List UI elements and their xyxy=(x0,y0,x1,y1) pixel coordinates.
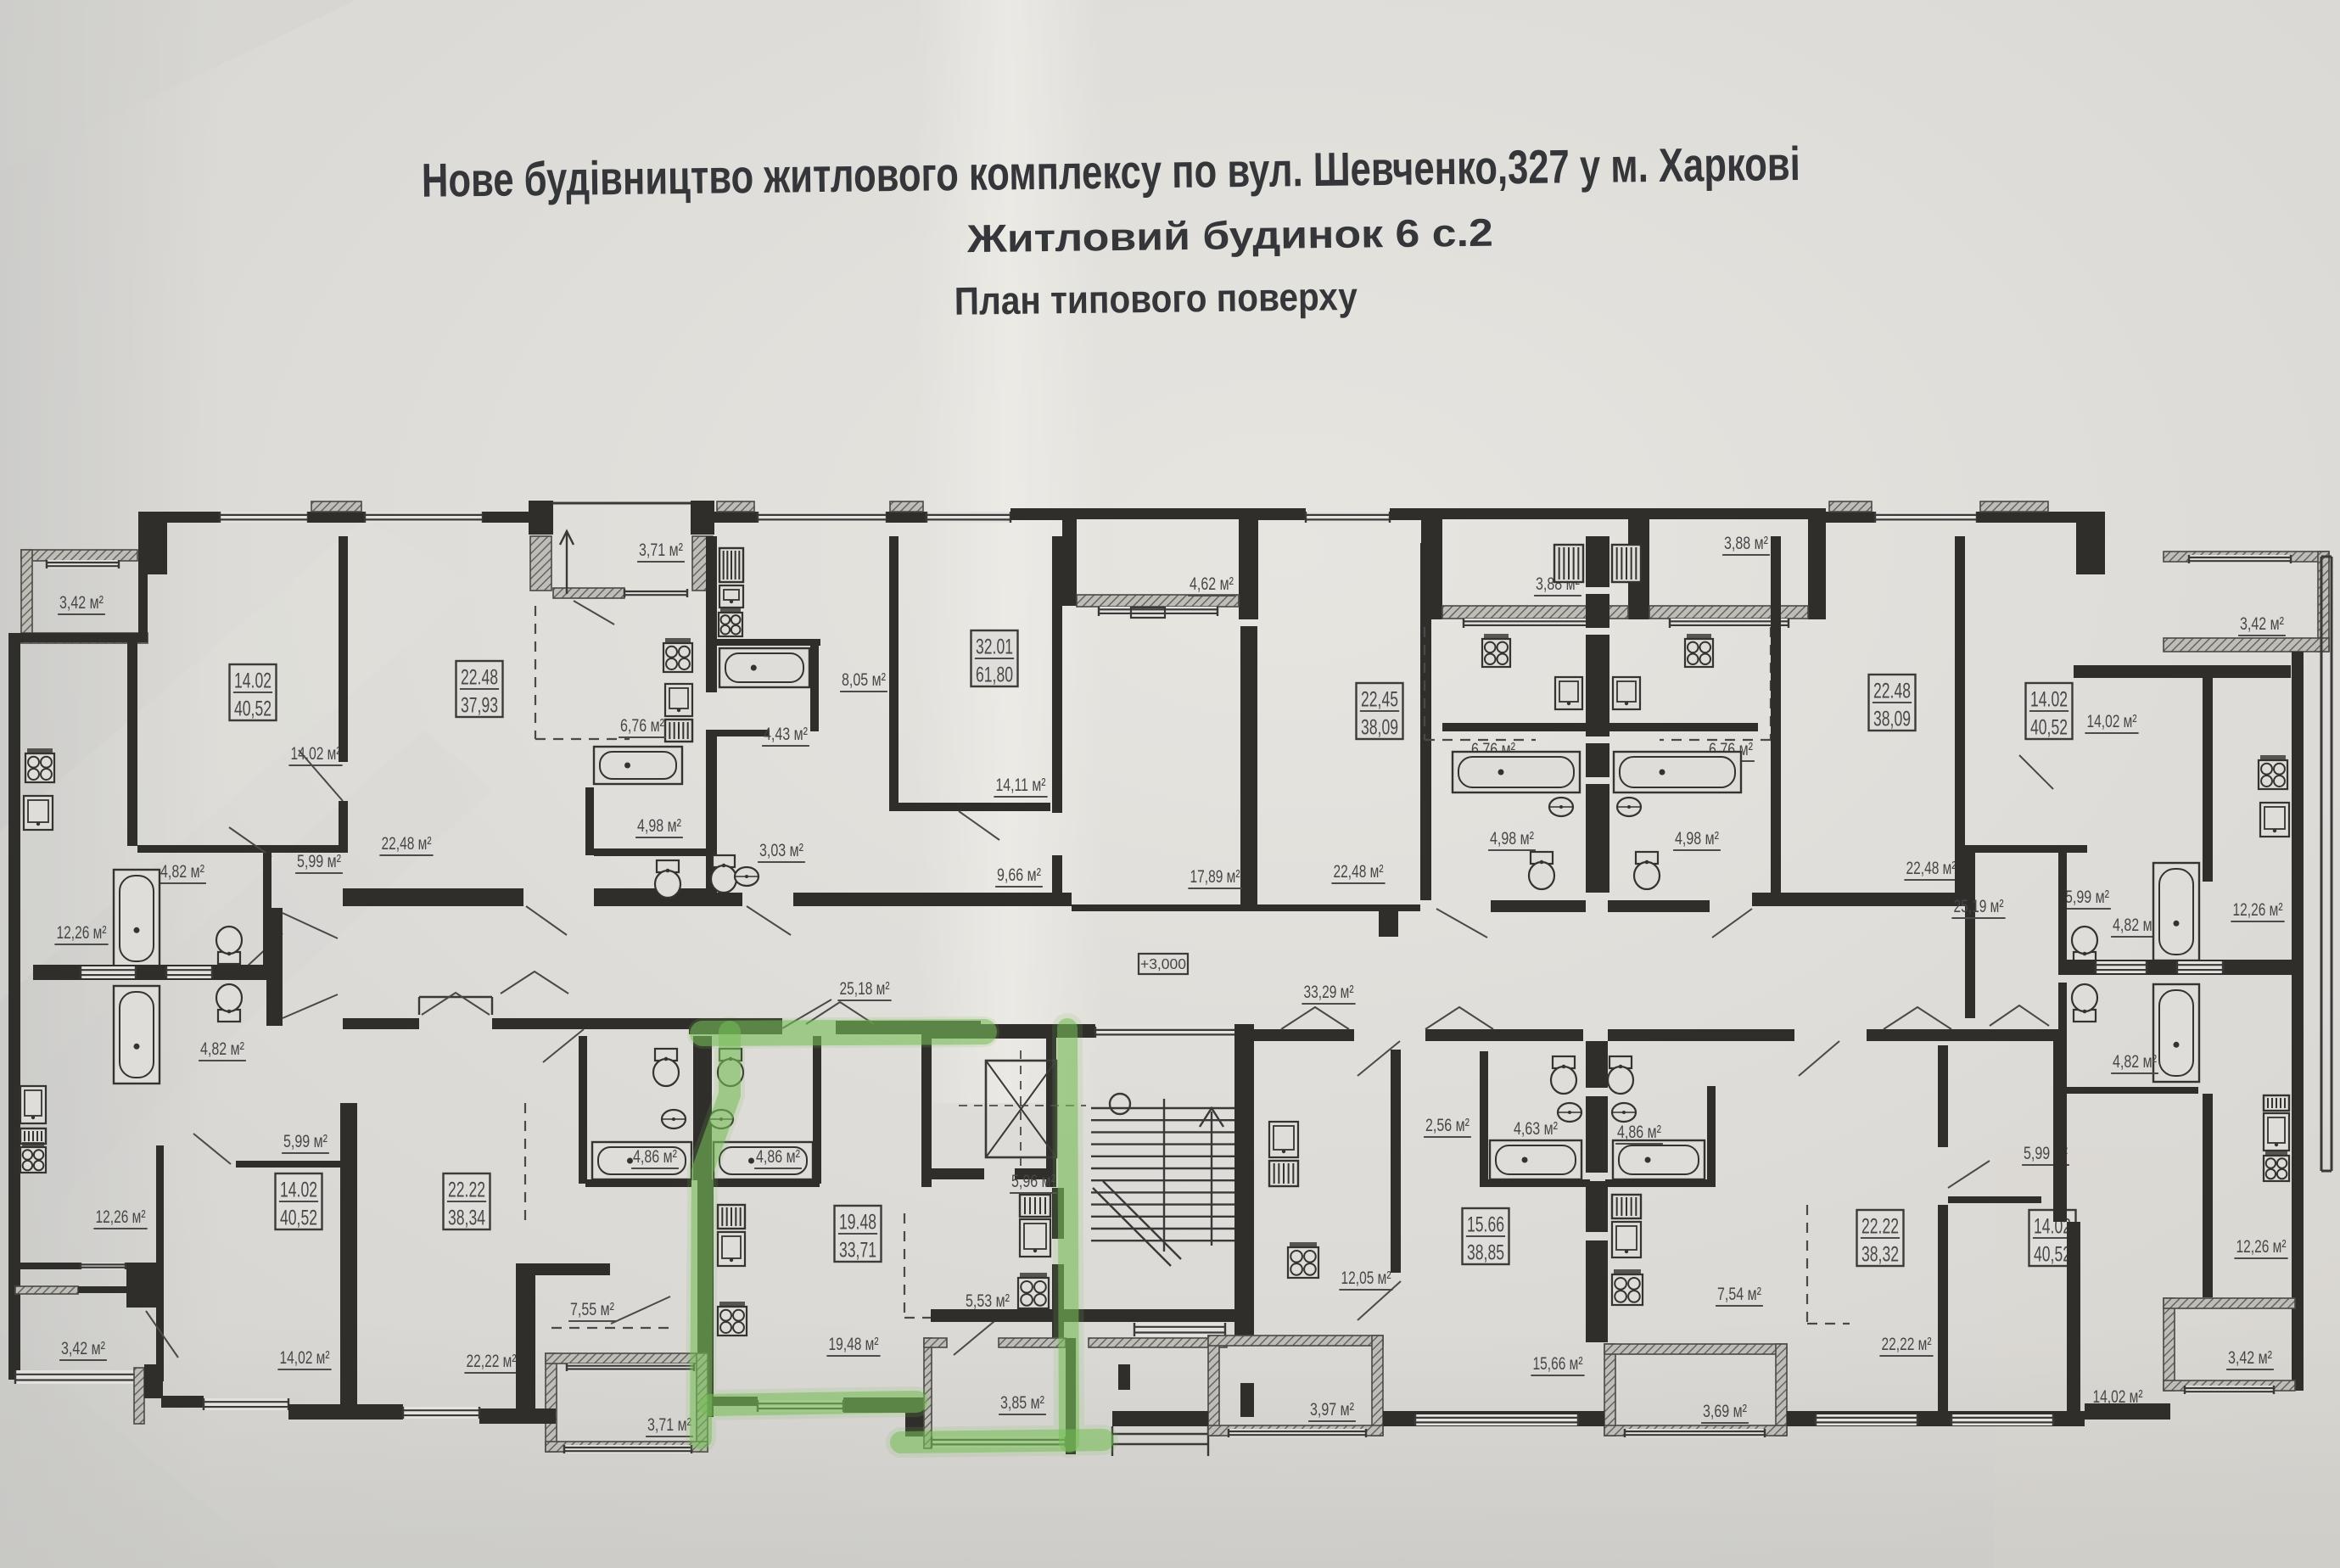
svg-text:14.02 м²: 14.02 м² xyxy=(291,744,341,764)
svg-text:План типового поверху: План типового поверху xyxy=(954,274,1358,323)
svg-text:14.02: 14.02 xyxy=(234,669,272,693)
svg-text:38,34: 38,34 xyxy=(448,1207,485,1230)
svg-text:38,85: 38,85 xyxy=(1467,1241,1504,1265)
svg-text:3,42 м²: 3,42 м² xyxy=(61,1339,105,1358)
svg-text:14,02 м²: 14,02 м² xyxy=(280,1348,330,1368)
svg-text:4,82 м²: 4,82 м² xyxy=(2113,1052,2157,1072)
svg-text:4,86 м²: 4,86 м² xyxy=(756,1147,800,1167)
svg-text:22.48: 22.48 xyxy=(461,666,498,690)
svg-text:17,89 м²: 17,89 м² xyxy=(1190,867,1240,887)
svg-text:40,52: 40,52 xyxy=(280,1207,317,1230)
svg-text:40,52: 40,52 xyxy=(2034,1243,2071,1267)
svg-text:19,48 м²: 19,48 м² xyxy=(829,1335,879,1354)
svg-text:5,99 м²: 5,99 м² xyxy=(2065,888,2109,907)
svg-text:38,09: 38,09 xyxy=(1361,716,1398,740)
svg-text:6,76 м²: 6,76 м² xyxy=(620,716,664,736)
svg-text:40,52: 40,52 xyxy=(234,697,272,721)
svg-text:4,62 м²: 4,62 м² xyxy=(1190,574,1234,594)
svg-text:8,05 м²: 8,05 м² xyxy=(842,670,886,690)
svg-text:22,48 м²: 22,48 м² xyxy=(1334,862,1384,882)
svg-text:61,80: 61,80 xyxy=(976,664,1013,687)
svg-text:4,86 м²: 4,86 м² xyxy=(1617,1123,1661,1142)
svg-text:5,96 м²: 5,96 м² xyxy=(1011,1172,1055,1191)
svg-text:3,71 м²: 3,71 м² xyxy=(639,540,683,560)
svg-text:4,86 м²: 4,86 м² xyxy=(633,1147,677,1167)
svg-text:19.48: 19.48 xyxy=(839,1211,876,1235)
svg-text:5,53 м²: 5,53 м² xyxy=(966,1291,1010,1311)
svg-text:12,26 м²: 12,26 м² xyxy=(2233,900,2283,920)
svg-text:5,99 м²: 5,99 м² xyxy=(283,1132,327,1151)
svg-text:22,22 м²: 22,22 м² xyxy=(1882,1335,1932,1354)
svg-text:3,42 м²: 3,42 м² xyxy=(2240,614,2284,634)
svg-text:4,63 м²: 4,63 м² xyxy=(1514,1119,1558,1139)
svg-text:14.02: 14.02 xyxy=(2030,688,2068,712)
svg-text:14.02: 14.02 xyxy=(280,1179,317,1202)
svg-text:Житловий будинок 6 с.2: Житловий будинок 6 с.2 xyxy=(966,210,1493,261)
svg-text:38,09: 38,09 xyxy=(1873,708,1911,731)
svg-text:40,52: 40,52 xyxy=(2030,716,2068,740)
svg-text:22,45: 22,45 xyxy=(1361,688,1398,712)
svg-text:22.22: 22.22 xyxy=(448,1179,485,1202)
svg-text:33,71: 33,71 xyxy=(839,1239,876,1263)
svg-text:12,26 м²: 12,26 м² xyxy=(96,1207,146,1227)
svg-text:12,05 м²: 12,05 м² xyxy=(1341,1268,1391,1288)
svg-text:5,99 м²: 5,99 м² xyxy=(297,852,341,871)
svg-text:14,02 м²: 14,02 м² xyxy=(2087,712,2137,731)
svg-text:3,71 м²: 3,71 м² xyxy=(647,1415,691,1435)
svg-text:4,43 м²: 4,43 м² xyxy=(764,725,808,744)
svg-text:4,82 м²: 4,82 м² xyxy=(200,1039,244,1059)
svg-text:12,26 м²: 12,26 м² xyxy=(57,923,107,943)
svg-text:3,69 м²: 3,69 м² xyxy=(1703,1402,1747,1421)
svg-text:25,19 м²: 25,19 м² xyxy=(1954,897,2004,916)
svg-text:4,82 м²: 4,82 м² xyxy=(2113,916,2157,935)
svg-text:4,98 м²: 4,98 м² xyxy=(1490,829,1534,848)
svg-text:22.48: 22.48 xyxy=(1873,680,1911,703)
svg-text:32.01: 32.01 xyxy=(976,636,1013,659)
svg-text:14,11 м²: 14,11 м² xyxy=(996,776,1046,795)
svg-text:25,18 м²: 25,18 м² xyxy=(840,979,890,999)
svg-text:33,29 м²: 33,29 м² xyxy=(1304,983,1354,1002)
svg-text:4,98 м²: 4,98 м² xyxy=(1675,829,1719,848)
svg-text:3,42 м²: 3,42 м² xyxy=(2228,1348,2272,1368)
svg-text:7,54 м²: 7,54 м² xyxy=(1717,1285,1761,1304)
svg-text:9,66 м²: 9,66 м² xyxy=(997,865,1041,885)
svg-text:+3,000: +3,000 xyxy=(1140,955,1186,972)
svg-text:7,55 м²: 7,55 м² xyxy=(570,1300,614,1319)
svg-text:15,66 м²: 15,66 м² xyxy=(1533,1354,1583,1374)
svg-text:3,42 м²: 3,42 м² xyxy=(59,593,104,613)
svg-text:12,26 м²: 12,26 м² xyxy=(2236,1237,2287,1257)
svg-text:3,88 м²: 3,88 м² xyxy=(1724,534,1768,553)
svg-text:22.22: 22.22 xyxy=(1861,1215,1899,1239)
svg-text:22,48 м²: 22,48 м² xyxy=(382,834,432,854)
svg-text:3,97 м²: 3,97 м² xyxy=(1310,1400,1354,1420)
svg-text:4,98 м²: 4,98 м² xyxy=(637,816,681,836)
svg-text:2,56 м²: 2,56 м² xyxy=(1425,1116,1469,1135)
svg-text:22,22 м²: 22,22 м² xyxy=(467,1352,517,1371)
svg-text:3,03 м²: 3,03 м² xyxy=(759,841,803,860)
svg-text:15.66: 15.66 xyxy=(1467,1213,1504,1237)
svg-text:22,48 м²: 22,48 м² xyxy=(1906,859,1957,878)
svg-text:4,82 м²: 4,82 м² xyxy=(160,862,204,882)
svg-text:37,93: 37,93 xyxy=(461,694,498,718)
svg-text:3,85 м²: 3,85 м² xyxy=(1000,1393,1044,1413)
svg-text:38,32: 38,32 xyxy=(1861,1243,1899,1267)
